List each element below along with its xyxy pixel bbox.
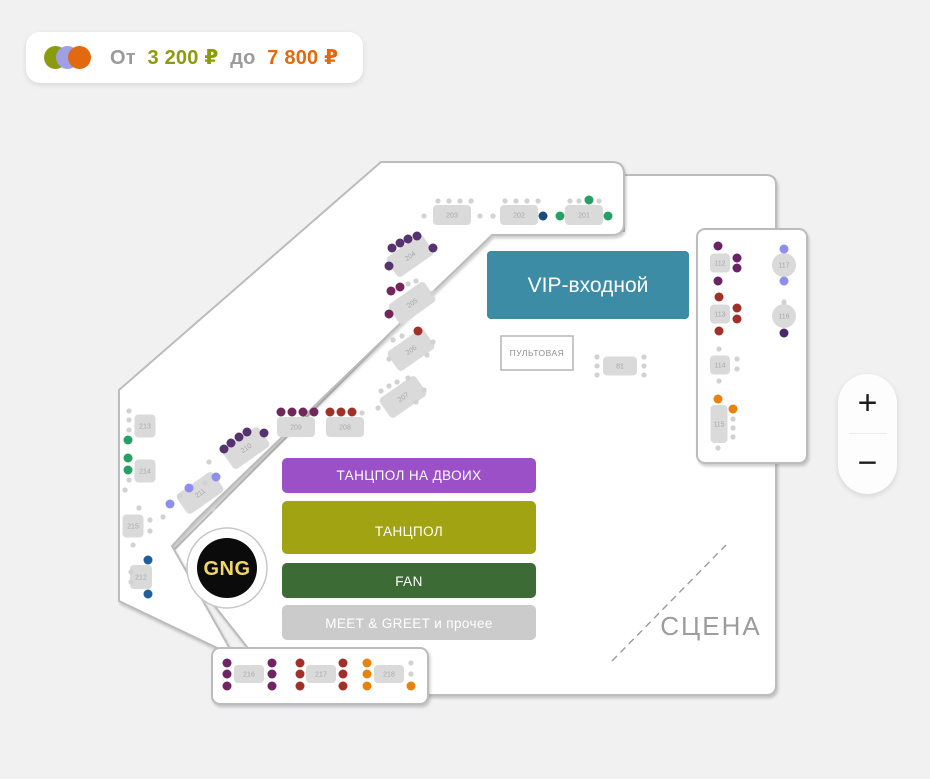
seat-dot[interactable] (539, 212, 548, 221)
seat-dot[interactable] (185, 484, 194, 493)
seat-dot[interactable] (326, 408, 335, 417)
seat-dot-unavailable (126, 408, 131, 413)
seat-dot[interactable] (414, 327, 423, 336)
zone-fan-label: FAN (395, 574, 422, 589)
seat-dot[interactable] (715, 293, 724, 302)
zone-soundboard: ПУЛЬТОВАЯ (501, 336, 573, 370)
seat-dot[interactable] (212, 473, 221, 482)
table-214-label: 214 (139, 469, 151, 476)
zone-meet-greet[interactable]: MEET & GREET и прочее (282, 605, 536, 640)
seat-dot[interactable] (166, 500, 175, 509)
zone-dance-duo[interactable]: ТАНЦПОЛ НА ДВОИХ (282, 458, 536, 493)
seat-dot-unavailable (386, 383, 391, 388)
seat-dot-unavailable (596, 198, 601, 203)
zone-soundboard-label: ПУЛЬТОВАЯ (510, 348, 565, 358)
table-208-label: 208 (339, 425, 351, 432)
seat-dot[interactable] (310, 408, 319, 417)
seat-dot[interactable] (396, 239, 405, 248)
seat-dot[interactable] (604, 212, 613, 221)
table-115-label: 115 (713, 422, 724, 429)
seat-dot-unavailable (524, 198, 529, 203)
seat-dot-unavailable (715, 445, 720, 450)
seat-dot-unavailable (457, 198, 462, 203)
seat-dot[interactable] (363, 670, 372, 679)
seat-dot[interactable] (268, 682, 277, 691)
seat-dot-unavailable (430, 290, 435, 295)
table-217-label: 217 (315, 672, 327, 679)
seat-dot-unavailable (394, 379, 399, 384)
seat-dot-unavailable (147, 517, 152, 522)
seat-dot[interactable] (337, 408, 346, 417)
seat-dot[interactable] (227, 439, 236, 448)
table-216-label: 216 (243, 672, 255, 679)
seat-dot-unavailable (477, 213, 482, 218)
seat-dot-unavailable (641, 363, 646, 368)
seat-dot-unavailable (435, 198, 440, 203)
seat-dot[interactable] (413, 232, 422, 241)
seat-dot-unavailable (399, 333, 404, 338)
seat-dot-unavailable (126, 427, 131, 432)
seat-dot-unavailable (147, 528, 152, 533)
seat-dot[interactable] (299, 408, 308, 417)
zone-fan[interactable]: FAN (282, 563, 536, 598)
seat-dot-unavailable (405, 281, 410, 286)
seat-dot[interactable] (348, 408, 357, 417)
seat-dot-unavailable (567, 198, 572, 203)
seat-dot[interactable] (124, 436, 133, 445)
seat-dot-unavailable (513, 198, 518, 203)
seat-dot[interactable] (714, 395, 723, 404)
seat-dot[interactable] (585, 196, 594, 205)
seat-dot[interactable] (729, 405, 738, 414)
seat-dot-unavailable (641, 354, 646, 359)
table-212-label: 212 (135, 575, 147, 582)
zone-meet-greet-label: MEET & GREET и прочее (325, 616, 493, 631)
table-202-label: 202 (513, 213, 525, 220)
seat-dot-unavailable (446, 198, 451, 203)
seat-dot-unavailable (130, 542, 135, 547)
table-117-label: 117 (778, 263, 789, 270)
seat-dot[interactable] (268, 659, 277, 668)
table-203-label: 203 (446, 213, 458, 220)
seat-dot[interactable] (339, 682, 348, 691)
seat-dot-unavailable (126, 417, 131, 422)
seat-dot[interactable] (780, 329, 789, 338)
seat-dot[interactable] (243, 428, 252, 437)
seat-dot[interactable] (124, 466, 133, 475)
seat-dot-unavailable (502, 198, 507, 203)
seat-dot-unavailable (210, 506, 215, 511)
seat-dot-unavailable (430, 339, 435, 344)
seat-dot[interactable] (714, 277, 723, 286)
zone-dance[interactable]: ТАНЦПОЛ (282, 501, 536, 554)
seat-dot-unavailable (716, 346, 721, 351)
seat-dot-unavailable (730, 434, 735, 439)
seat-dot-unavailable (160, 514, 165, 519)
seat-dot[interactable] (144, 556, 153, 565)
seat-dot-unavailable (122, 487, 127, 492)
seat-dot-unavailable (421, 213, 426, 218)
seat-dot[interactable] (733, 315, 742, 324)
seat-dot-unavailable (206, 459, 211, 464)
seat-dot-unavailable (408, 660, 413, 665)
seat-dot[interactable] (235, 433, 244, 442)
seat-dot[interactable] (363, 682, 372, 691)
seat-dot-unavailable (594, 372, 599, 377)
seat-dot[interactable] (388, 244, 397, 253)
table-116-label: 116 (778, 314, 789, 321)
seat-dot[interactable] (387, 287, 396, 296)
table-113-label: 113 (714, 312, 725, 319)
seat-dot-unavailable (136, 505, 141, 510)
table-114-label: 114 (714, 363, 725, 370)
venue-map[interactable]: VIP-входной ПУЛЬТОВАЯ ТАНЦПОЛ НА ДВОИХ Т… (0, 0, 930, 779)
seat-dot[interactable] (733, 264, 742, 273)
seat-dot[interactable] (339, 659, 348, 668)
seat-dot-unavailable (716, 378, 721, 383)
seat-dot-unavailable (359, 410, 364, 415)
seat-dot-unavailable (390, 337, 395, 342)
seat-dot-unavailable (734, 366, 739, 371)
seat-dot-unavailable (641, 372, 646, 377)
seat-dot-unavailable (128, 569, 133, 574)
seat-dot[interactable] (396, 283, 405, 292)
seat-dot[interactable] (715, 327, 724, 336)
seat-dot-unavailable (128, 579, 133, 584)
stage-label: СЦЕНА (660, 611, 761, 641)
seat-dot-unavailable (468, 198, 473, 203)
seat-dot[interactable] (363, 659, 372, 668)
seat-dot[interactable] (223, 659, 232, 668)
seat-dot[interactable] (223, 682, 232, 691)
table-215-label: 215 (127, 524, 139, 531)
table-209-label: 209 (290, 425, 302, 432)
price-color-dots (44, 46, 91, 69)
seat-dot-unavailable (413, 399, 418, 404)
venue-logo-monogram: GNG (203, 558, 250, 580)
venue-logo: GNG (187, 528, 267, 608)
seat-dot-unavailable (594, 354, 599, 359)
seat-dot[interactable] (296, 682, 305, 691)
seat-dot[interactable] (780, 277, 789, 286)
seat-dot[interactable] (144, 590, 153, 599)
seat-dot[interactable] (429, 244, 438, 253)
seat-dot-unavailable (126, 477, 131, 482)
seat-dot[interactable] (223, 670, 232, 679)
seat-dot[interactable] (404, 235, 413, 244)
orange-price-dot-icon (68, 46, 91, 69)
seat-dot[interactable] (288, 408, 297, 417)
seat-dot-unavailable (424, 352, 429, 357)
seat-dot[interactable] (385, 310, 394, 319)
seat-dot[interactable] (220, 445, 229, 454)
price-to-label: до (230, 47, 255, 69)
zone-dance-duo-label: ТАНЦПОЛ НА ДВОИХ (336, 468, 481, 483)
zone-vip[interactable]: VIP-входной (487, 251, 689, 319)
map-zoom-controls: + − (838, 374, 897, 494)
seat-dot-unavailable (408, 671, 413, 676)
seat-dot[interactable] (296, 670, 305, 679)
table-112-label: 112 (714, 261, 725, 268)
seat-dot[interactable] (556, 212, 565, 221)
zone-vip-label: VIP-входной (528, 274, 649, 297)
seat-dot-unavailable (576, 198, 581, 203)
seat-dot-unavailable (535, 198, 540, 203)
seat-dot[interactable] (780, 245, 789, 254)
seat-dot[interactable] (733, 254, 742, 263)
seat-dot[interactable] (268, 670, 277, 679)
seat-dot[interactable] (714, 242, 723, 251)
seat-dot-unavailable (730, 425, 735, 430)
zoom-out-button[interactable]: − (838, 434, 897, 493)
table-213-label: 213 (139, 424, 151, 431)
seat-dot-unavailable (734, 356, 739, 361)
seat-dot-unavailable (202, 480, 207, 485)
seat-dot-unavailable (730, 416, 735, 421)
seat-map-page: VIP-входной ПУЛЬТОВАЯ ТАНЦПОЛ НА ДВОИХ Т… (0, 0, 930, 779)
zoom-in-button[interactable]: + (838, 374, 897, 433)
seat-dot-unavailable (378, 388, 383, 393)
seat-dot-unavailable (490, 213, 495, 218)
price-max-value: 7 800 ₽ (267, 47, 338, 69)
seat-dot-unavailable (781, 299, 786, 304)
table-201-label: 201 (578, 213, 590, 220)
table-81-label: 81 (616, 364, 624, 371)
table-218-label: 218 (383, 672, 395, 679)
seat-dot[interactable] (296, 659, 305, 668)
seat-dot[interactable] (124, 454, 133, 463)
seat-dot-unavailable (375, 405, 380, 410)
price-range-badge: От 3 200 ₽ до 7 800 ₽ (26, 32, 363, 83)
price-min-value: 3 200 ₽ (148, 47, 219, 69)
price-range-text: От 3 200 ₽ до 7 800 ₽ (107, 45, 341, 70)
seat-dot[interactable] (385, 262, 394, 271)
zone-dance-label: ТАНЦПОЛ (375, 524, 443, 539)
seat-dot[interactable] (407, 682, 416, 691)
price-from-label: От (110, 47, 136, 69)
seat-dot-unavailable (421, 387, 426, 392)
seat-dot[interactable] (733, 304, 742, 313)
seat-dot-unavailable (386, 356, 391, 361)
seat-dot-unavailable (405, 375, 410, 380)
seat-dot[interactable] (260, 429, 269, 438)
seat-dot[interactable] (339, 670, 348, 679)
seat-dot-unavailable (594, 363, 599, 368)
seat-dot-unavailable (413, 278, 418, 283)
seat-dot-unavailable (177, 493, 182, 498)
seat-dot[interactable] (277, 408, 286, 417)
